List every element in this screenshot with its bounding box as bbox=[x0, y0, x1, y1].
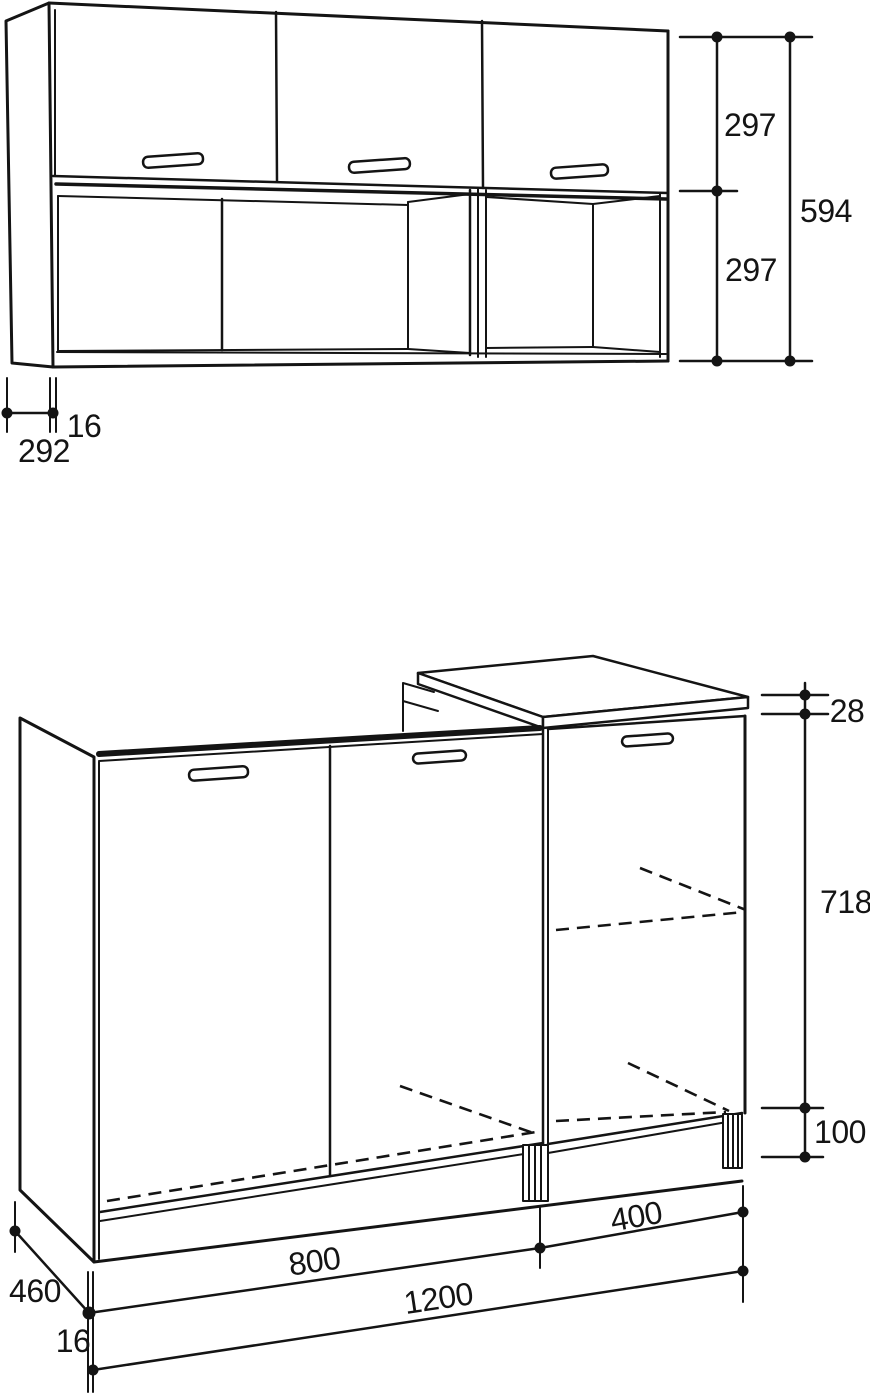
technical-drawing-page: 292 16 297 297 594 bbox=[0, 0, 870, 1396]
base-left-bottom-board bbox=[100, 1151, 543, 1221]
dim-dot bbox=[48, 408, 59, 419]
wall-side-panel bbox=[6, 3, 53, 367]
dim-dot bbox=[83, 1307, 96, 1320]
wall-cabinet-drawing bbox=[6, 3, 668, 367]
wall-depth-extension-lines bbox=[7, 378, 56, 432]
dim-dot bbox=[800, 709, 811, 720]
dim-label-wall-lower-height: 297 bbox=[725, 252, 777, 288]
dim-dot bbox=[712, 186, 723, 197]
wall-door2-handle bbox=[349, 158, 411, 173]
hidden-shelf-right-bottom-upper bbox=[628, 1063, 729, 1111]
dim-dot bbox=[800, 1152, 811, 1163]
dim-label-base-panel-thickness: 16 bbox=[56, 1323, 91, 1359]
wall-bottom-edge bbox=[53, 361, 668, 367]
base-door3-handle bbox=[622, 733, 674, 747]
base-top-band bbox=[99, 728, 540, 754]
hidden-shelf-left-upper bbox=[400, 1086, 536, 1134]
wall-top-edge bbox=[49, 3, 668, 31]
dim-dot bbox=[738, 1266, 749, 1277]
wall-door3-handle bbox=[551, 164, 609, 179]
dim-dot bbox=[800, 1103, 811, 1114]
dim-label-base-depth: 460 bbox=[9, 1273, 61, 1309]
dim-label-carcass-height: 718 bbox=[820, 884, 870, 920]
dim-label-top-thickness: 28 bbox=[830, 693, 865, 729]
dim-dot bbox=[785, 356, 796, 367]
dim-label-right-width: 400 bbox=[607, 1194, 664, 1238]
dim-label-wall-total-height: 594 bbox=[800, 193, 852, 229]
base-leg-right bbox=[723, 1114, 742, 1168]
base-right-ticks bbox=[762, 695, 828, 1157]
wall-left-panel-slant-top bbox=[408, 194, 470, 202]
hidden-shelf-right-mid-upper bbox=[640, 868, 746, 910]
wall-left-open-top bbox=[58, 196, 408, 205]
dim-dot bbox=[800, 690, 811, 701]
wall-cabinet-dimensions: 292 16 297 297 594 bbox=[2, 32, 852, 470]
base-right-bottom-board bbox=[548, 1122, 727, 1153]
base-leg-center bbox=[523, 1145, 548, 1201]
wall-right-open-bottom bbox=[486, 347, 593, 348]
base-side-panel bbox=[20, 718, 94, 1262]
dim-dot bbox=[10, 1226, 21, 1237]
dim-dot bbox=[535, 1243, 546, 1254]
dim-label-plinth-height: 100 bbox=[814, 1114, 866, 1150]
wall-door-divider-1 bbox=[276, 12, 277, 181]
base-left-doors-bottom bbox=[100, 1143, 543, 1212]
wall-right-panel-slant-bottom bbox=[593, 347, 660, 352]
base-door2-handle bbox=[413, 750, 467, 764]
wall-bottom-board bbox=[57, 352, 666, 354]
base-right-door-bottom bbox=[548, 1113, 742, 1144]
hidden-shelf-right-mid-lower bbox=[556, 912, 744, 930]
dim-label-left-width: 800 bbox=[286, 1240, 342, 1283]
base-door1-handle bbox=[189, 766, 249, 781]
dim-dot bbox=[738, 1207, 749, 1218]
wall-left-open-bottom bbox=[58, 349, 408, 351]
dim-label-wall-upper-height: 297 bbox=[724, 107, 776, 143]
wall-door1-handle bbox=[143, 153, 204, 168]
wall-door-divider-2 bbox=[482, 21, 483, 188]
dim-label-wall-panel-thickness: 16 bbox=[67, 408, 102, 444]
dim-dot bbox=[712, 356, 723, 367]
base-cabinet-dimensions: 28 718 100 460 16 800 400 1200 bbox=[9, 683, 870, 1392]
dim-dot bbox=[785, 32, 796, 43]
hidden-shelf-left-lower bbox=[107, 1132, 536, 1201]
dim-dot bbox=[712, 32, 723, 43]
cabinet-dimension-diagram: 292 16 297 297 594 bbox=[0, 0, 870, 1396]
dim-label-wall-depth: 292 bbox=[18, 433, 70, 469]
dim-dot bbox=[88, 1365, 99, 1376]
base-cabinet-drawing bbox=[20, 656, 748, 1262]
dim-dot bbox=[2, 408, 13, 419]
